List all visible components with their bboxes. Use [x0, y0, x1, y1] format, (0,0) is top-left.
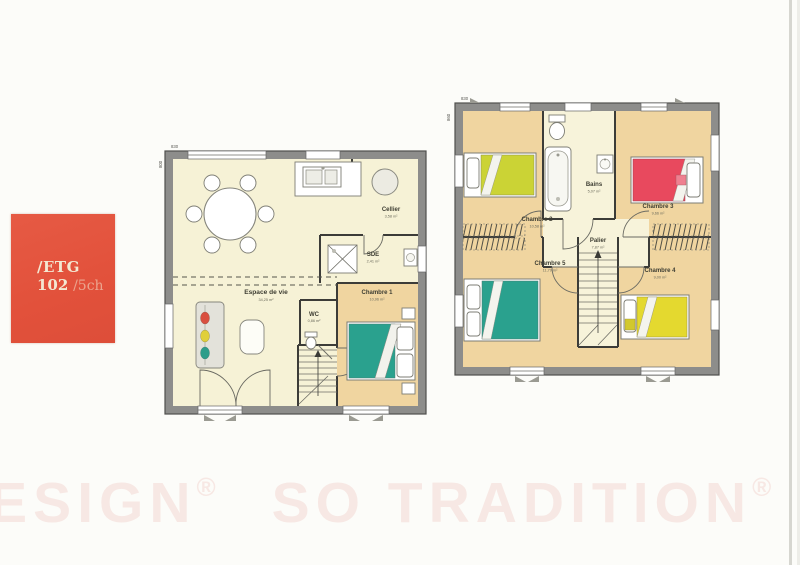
ff-area-chambre4: 9,00 m² — [654, 276, 668, 280]
ff-label-chambre3: Chambre 3 — [642, 204, 674, 210]
ff-bed-chambre5 — [464, 279, 540, 341]
gf-sofa — [196, 302, 224, 368]
gf-sde-sink — [404, 249, 417, 266]
ff-label-palier: Palier — [590, 238, 607, 244]
ff-dim-width: 830 — [461, 96, 469, 101]
gf-area-cellier: 3,58 m² — [385, 215, 399, 219]
gf-bed-chambre1 — [347, 322, 415, 380]
ff-bed-chambre2 — [464, 153, 536, 197]
gf-dim-height: 800 — [158, 160, 163, 168]
badge-ref-label: 102 /5ch — [37, 276, 104, 294]
ff-label-chambre4: Chambre 4 — [644, 268, 676, 274]
registered-mark-icon: ® — [197, 472, 216, 502]
gf-label-wc: WC — [309, 312, 320, 318]
ff-area-chambre3: 9,66 m² — [652, 212, 666, 216]
ff-bed-chambre4 — [621, 295, 689, 339]
ff-area-chambre5: 11,79 m² — [543, 269, 558, 273]
ff-area-bains: 5,07 m² — [588, 190, 602, 194]
ff-area-palier: 7,87 m² — [592, 246, 606, 250]
gf-coffee-table — [240, 320, 264, 354]
ff-label-chambre2: Chambre 2 — [521, 217, 553, 223]
watermark-word-so-tradition: SO TRADITION — [272, 471, 753, 535]
ff-bathtub — [545, 147, 571, 211]
ff-area-chambre2: 10,58 m² — [530, 225, 546, 229]
badge-etg-label: /ETG — [37, 258, 80, 276]
badge-suffix: /5ch — [73, 278, 103, 294]
gf-dim-width: 830 — [171, 144, 179, 149]
watermark-text: DESIGN® SO TRADITION® SO — [0, 470, 800, 536]
upper-floor-plan: 830 860 — [445, 95, 729, 387]
gf-wc-toilet — [305, 332, 317, 349]
scanned-floorplan-page: /ETG 102 /5ch 830 800 — [0, 0, 800, 565]
ground-floor-plan: 830 800 — [158, 142, 434, 420]
ff-toilet — [549, 115, 565, 140]
ff-label-bains: Bains — [586, 182, 603, 188]
gf-label-cellier: Cellier — [382, 207, 401, 213]
ff-bed-chambre3 — [631, 157, 703, 203]
ff-label-chambre5: Chambre 5 — [534, 261, 566, 267]
gf-area-espace-de-vie: 34,25 m² — [259, 298, 275, 302]
registered-mark-icon: ® — [752, 472, 771, 502]
gf-label-chambre1: Chambre 1 — [361, 290, 393, 296]
gf-shower — [328, 245, 357, 273]
gf-area-chambre1: 10,96 m² — [370, 298, 386, 302]
gf-kitchen-counter — [295, 162, 361, 196]
ff-dim-height: 860 — [446, 113, 451, 121]
gf-area-sde: 2,41 m² — [367, 260, 381, 264]
scan-edge-shadow — [789, 0, 792, 565]
badge-number: 102 — [37, 276, 68, 294]
gf-label-sde: SDE — [367, 252, 379, 258]
gf-area-wc: 0,86 m² — [308, 319, 322, 323]
program-badge: /ETG 102 /5ch — [11, 214, 115, 343]
ff-bains-sink — [597, 155, 613, 173]
watermark-word-design: DESIGN — [0, 471, 197, 535]
gf-water-heater — [372, 169, 398, 195]
gf-label-espace-de-vie: Espace de vie — [244, 289, 288, 296]
